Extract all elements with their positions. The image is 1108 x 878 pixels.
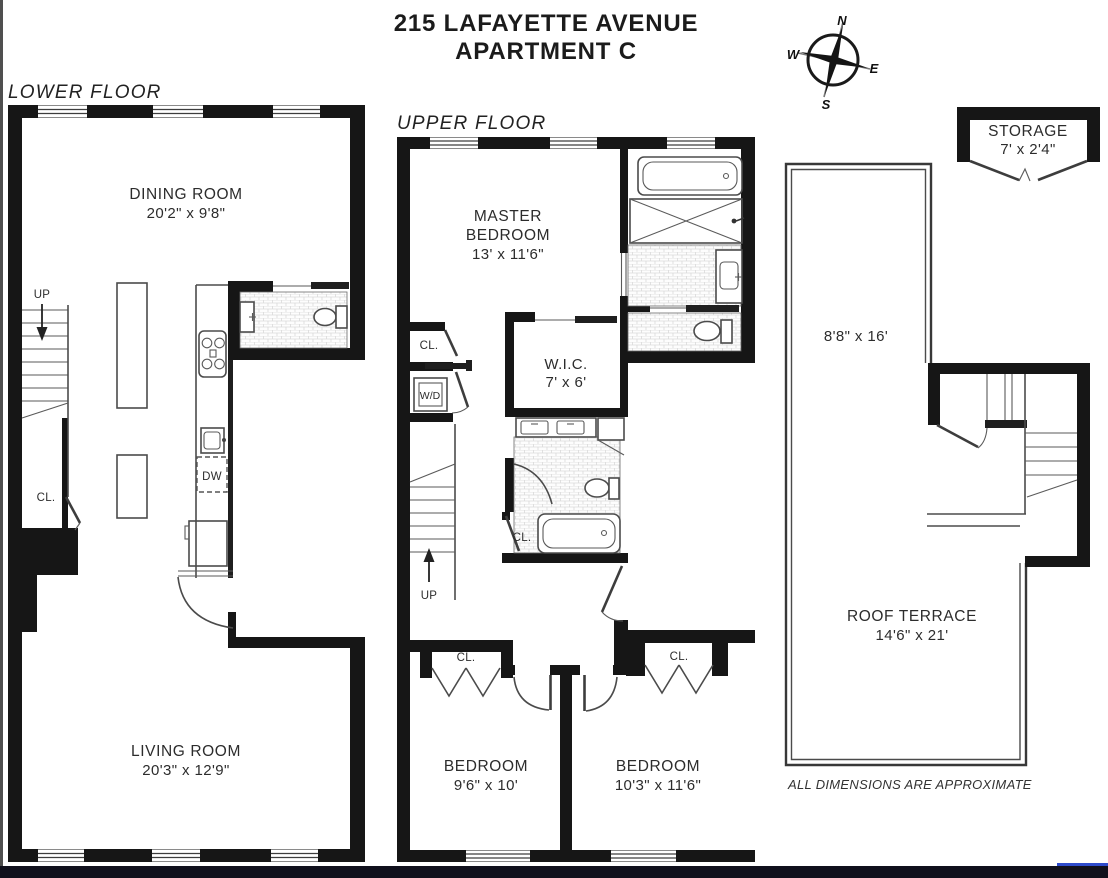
dining-room-label: DINING ROOM (129, 186, 242, 203)
bottom-bar (0, 866, 1108, 878)
living-room-label: LIVING ROOM (131, 743, 241, 760)
sliding-door (575, 316, 617, 323)
toilet-icon (694, 320, 732, 343)
toilet-icon (585, 478, 619, 499)
compass-west-label: W (787, 47, 801, 62)
bath-closet-label: CL. (513, 532, 532, 544)
bedroom2-closet-label: CL. (670, 651, 689, 663)
roof-terrace-label: ROOF TERRACE (847, 608, 977, 625)
master-bedroom-label1: MASTER (474, 208, 542, 225)
master-bedroom-label2: BEDROOM (466, 227, 550, 244)
floorplan-canvas: 215 LAFAYETTE AVENUE APARTMENT C N W E S… (0, 0, 1108, 878)
storage-dims: 7' x 2'4" (1000, 141, 1056, 158)
bedroom-right-dims: 10'3" x 11'6" (615, 777, 701, 794)
master-closet-label: CL. (420, 340, 439, 352)
toilet-icon (314, 306, 347, 328)
kitchen-island (117, 283, 147, 408)
master-bedroom-dims: 13' x 11'6" (472, 246, 544, 263)
sliding-door (425, 363, 471, 369)
double-vanity-icon (516, 418, 596, 437)
title-line1: 215 LAFAYETTE AVENUE (394, 10, 699, 37)
lower-bathroom (240, 282, 349, 348)
bathtub-icon (538, 514, 620, 553)
bathtub-icon (638, 157, 742, 195)
compass-south-label: S (822, 97, 831, 112)
bedroom-left-dims: 9'6" x 10' (454, 777, 518, 794)
bathroom-vanity-icon (716, 250, 742, 303)
kitchen-island (117, 455, 147, 518)
second-bathroom: CL. (502, 418, 624, 553)
bedroom-left-label: BEDROOM (444, 758, 528, 775)
lower-up-label: UP (34, 289, 51, 301)
lower-closet-label: CL. (37, 492, 56, 504)
master-bathroom (622, 157, 745, 351)
bottom-accent-line (1057, 863, 1108, 866)
footnote: ALL DIMENSIONS ARE APPROXIMATE (787, 777, 1032, 792)
upper-up-label: UP (421, 590, 438, 602)
storage-label: STORAGE (988, 123, 1068, 140)
compass-north-label: N (837, 13, 847, 28)
floorplan-page: 215 LAFAYETTE AVENUE APARTMENT C N W E S… (0, 0, 1108, 878)
upper-floor-label: UPPER FLOOR (397, 113, 546, 134)
dishwasher-label: DW (202, 471, 222, 483)
dining-room-dims: 20'2" x 9'8" (147, 205, 226, 222)
bedroom1-closet-label: CL. (457, 652, 476, 664)
washer-dryer-label: W/D (420, 390, 441, 402)
roof-upper-section-dims: 8'8" x 16' (824, 328, 888, 345)
sliding-door (686, 305, 739, 312)
bedroom-right-label: BEDROOM (616, 758, 700, 775)
wic-label: W.I.C. (544, 356, 587, 373)
left-edge-line (0, 0, 3, 866)
roof-terrace-dims: 14'6" x 21' (876, 627, 949, 644)
wic-dims: 7' x 6' (545, 374, 586, 391)
living-room-dims: 20'3" x 12'9" (142, 762, 229, 779)
compass-east-label: E (870, 61, 879, 76)
title-line2: APARTMENT C (455, 38, 637, 65)
sliding-door (311, 282, 349, 289)
lower-floor-label: LOWER FLOOR (8, 82, 162, 103)
